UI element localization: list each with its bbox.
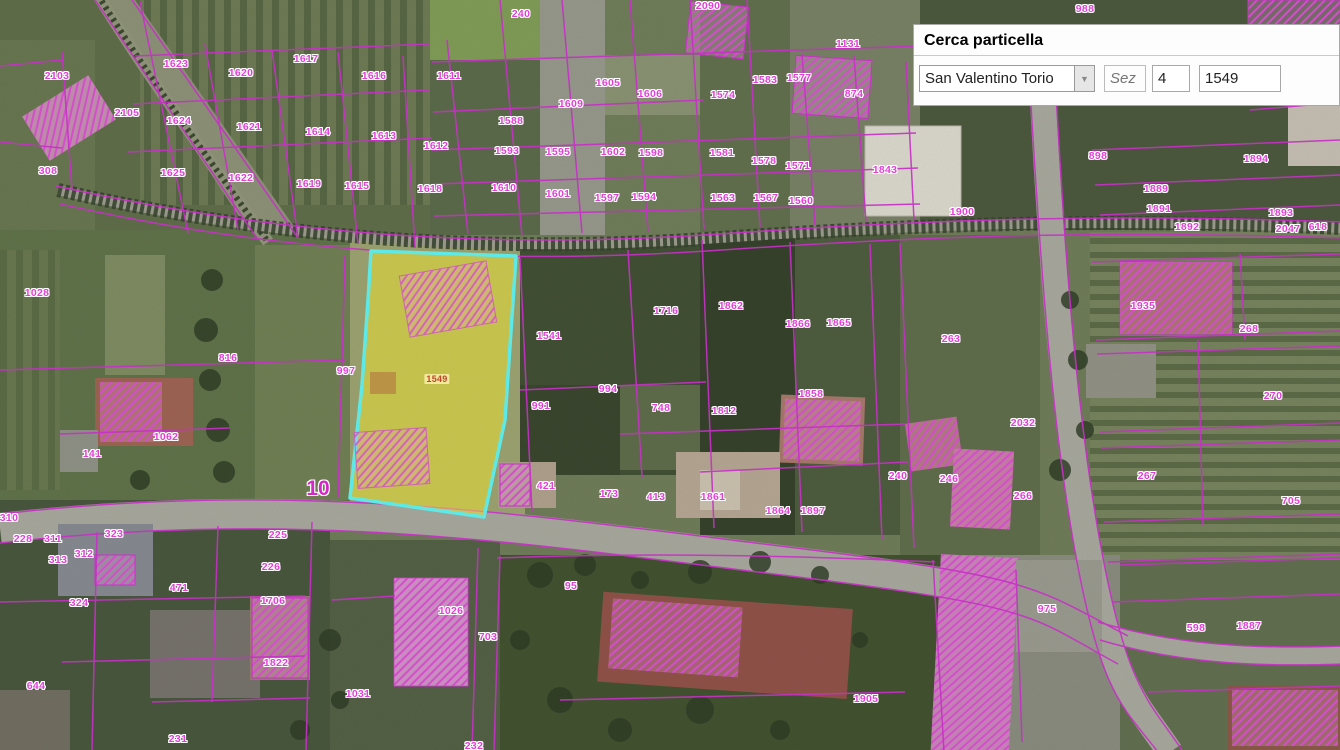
panel-controls: San Valentino Torio ▼: [914, 56, 1339, 92]
aerial-grain: [0, 0, 1340, 750]
comune-select[interactable]: San Valentino Torio ▼: [919, 65, 1095, 92]
map-svg: [0, 0, 1340, 750]
highlighted-parcel-group: [350, 251, 516, 517]
search-panel: Cerca particella San Valentino Torio ▼: [913, 24, 1340, 106]
map-viewport[interactable]: 2103210516231620161716161624162116141613…: [0, 0, 1340, 750]
chevron-down-icon[interactable]: ▼: [1074, 66, 1094, 91]
particella-input[interactable]: [1199, 65, 1281, 92]
foglio-input[interactable]: [1152, 65, 1190, 92]
comune-select-value: San Valentino Torio: [920, 66, 1074, 91]
panel-title: Cerca particella: [914, 25, 1339, 56]
sez-input[interactable]: [1104, 65, 1146, 92]
